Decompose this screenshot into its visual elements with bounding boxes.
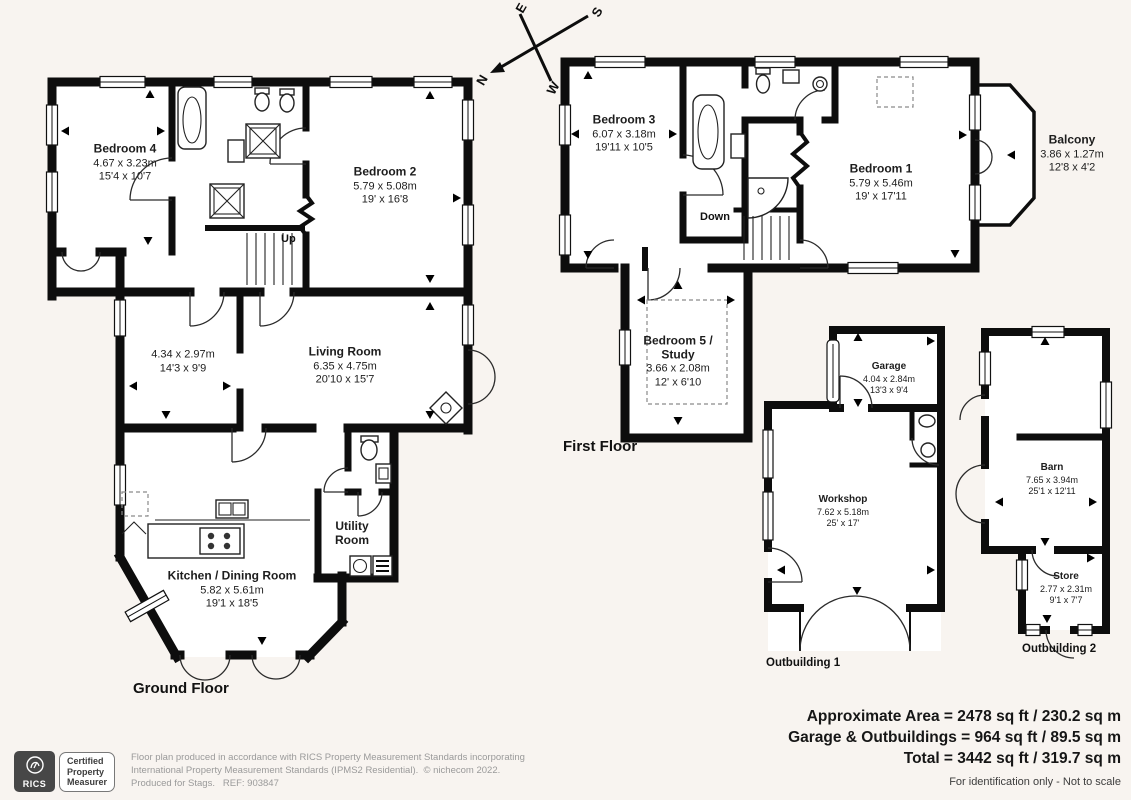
room-dim-imperial: 25' x 17' (817, 518, 869, 530)
room-dim-metric: 4.34 x 2.97m (151, 349, 215, 363)
room-name: Living Room (309, 345, 382, 359)
badge-line: Certified (67, 756, 107, 767)
room-label-balcony: Balcony 3.86 x 1.27m 12'8 x 4'2 (1040, 133, 1104, 175)
washer-icon (350, 556, 392, 576)
badge-line: Property (67, 767, 107, 778)
room-dim-metric: 4.04 x 2.84m (863, 373, 915, 385)
room-name: Bedroom 1 (849, 162, 913, 176)
room-label-utility-room: Utility Room (321, 520, 383, 548)
identification-note: For identification only - Not to scale (788, 772, 1121, 793)
room-label-living-room: Living Room 6.35 x 4.75m 20'10 x 15'7 (309, 345, 382, 387)
disclaimer-text: Floor plan produced in accordance with R… (131, 751, 525, 790)
total-area-line: Total = 3442 sq ft / 319.7 sq m (788, 748, 1121, 769)
room-dim-imperial: 15'4 x 10'7 (93, 170, 157, 184)
room-dim-metric: 6.35 x 4.75m (309, 360, 382, 374)
first-floor-title: First Floor (563, 438, 637, 455)
disclaimer-line: International Property Measurement Stand… (131, 764, 525, 777)
room-dim-metric: 4.67 x 3.23m (93, 157, 157, 171)
rics-logo: RICS (14, 751, 55, 792)
room-dim-metric: 2.77 x 2.31m (1040, 583, 1092, 595)
room-dim-imperial: 19' x 17'11 (849, 190, 913, 204)
stairs-down-label: Down (700, 211, 730, 223)
room-dim-metric: 7.65 x 3.94m (1026, 474, 1078, 486)
room-name: Garage (863, 360, 915, 374)
room-label-kitchen-dining: Kitchen / Dining Room 5.82 x 5.61m 19'1 … (168, 569, 297, 611)
room-name: Workshop (817, 493, 869, 507)
certified-property-measurer-badge: Certified Property Measurer (59, 752, 115, 792)
room-label-bedroom-3: Bedroom 3 6.07 x 3.18m 19'11 x 10'5 (592, 113, 656, 155)
room-name: Store (1040, 570, 1092, 584)
disclaimer-line: Floor plan produced in accordance with R… (131, 751, 525, 764)
room-dim-metric: 5.79 x 5.08m (353, 180, 417, 194)
room-dim-metric: 5.82 x 5.61m (168, 584, 297, 598)
sink-icon (731, 134, 745, 158)
room-name: Balcony (1040, 133, 1104, 147)
room-dim-metric: 5.79 x 5.46m (849, 177, 913, 191)
room-label-barn: Barn 7.65 x 3.94m 25'1 x 12'11 (1026, 461, 1078, 498)
kitchen-island-icon (148, 524, 244, 558)
room-dim-imperial: 19' x 16'8 (353, 193, 417, 207)
outbuilding-2-title: Outbuilding 2 (1022, 643, 1096, 655)
room-label-bedroom-1: Bedroom 1 5.79 x 5.46m 19' x 17'11 (849, 162, 913, 204)
room-label-store: Store 2.77 x 2.31m 9'1 x 7'7 (1040, 570, 1092, 607)
rics-logo-text: RICS (14, 779, 55, 789)
room-dim-metric: 6.07 x 3.18m (592, 128, 656, 142)
disclaimer-line: Produced for Stags. REF: 903847 (131, 777, 525, 790)
room-label-bedroom-2: Bedroom 2 5.79 x 5.08m 19' x 16'8 (353, 165, 417, 207)
room-dim-imperial: 20'10 x 15'7 (309, 373, 382, 387)
garage-outbuildings-line: Garage & Outbuildings = 964 sq ft / 89.5… (788, 727, 1121, 748)
bathtub-icon (693, 95, 724, 169)
outbuilding-1-title: Outbuilding 1 (766, 657, 840, 669)
approximate-area-line: Approximate Area = 2478 sq ft / 230.2 sq… (788, 706, 1121, 727)
room-dim-imperial: 12'8 x 4'2 (1040, 161, 1104, 175)
ground-floor-title: Ground Floor (133, 680, 229, 697)
room-label-garage: Garage 4.04 x 2.84m 13'3 x 9'4 (863, 360, 915, 397)
room-name: Utility Room (321, 520, 383, 547)
room-name: Bedroom 2 (353, 165, 417, 179)
sink-icon (228, 140, 244, 162)
room-label-workshop: Workshop 7.62 x 5.18m 25' x 17' (817, 493, 869, 530)
bathtub-icon (178, 87, 206, 149)
room-dim-metric: 7.62 x 5.18m (817, 506, 869, 518)
room-name: Barn (1026, 461, 1078, 475)
room-label-unnamed-room: 4.34 x 2.97m 14'3 x 9'9 (151, 349, 215, 376)
room-dim-imperial: 12' x 6'10 (634, 376, 722, 390)
room-label-bedroom-4: Bedroom 4 4.67 x 3.23m 15'4 x 10'7 (93, 142, 157, 184)
area-summary: Approximate Area = 2478 sq ft / 230.2 sq… (788, 706, 1121, 793)
room-dim-metric: 3.86 x 1.27m (1040, 148, 1104, 162)
floor-plan-page: N E S W Bedroom 4 4.67 x 3.23m 15'4 x 10… (0, 0, 1131, 800)
room-dim-imperial: 9'1 x 7'7 (1040, 595, 1092, 607)
room-name: Bedroom 4 (93, 142, 157, 156)
room-name: Bedroom 3 (592, 113, 656, 127)
room-label-bedroom-5-study: Bedroom 5 / Study 3.66 x 2.08m 12' x 6'1… (634, 335, 722, 390)
stairs-up-label: Up (281, 233, 296, 245)
rics-crest-icon (24, 754, 46, 776)
room-dim-metric: 3.66 x 2.08m (634, 363, 722, 377)
room-name: Kitchen / Dining Room (168, 569, 297, 583)
room-dim-imperial: 14'3 x 9'9 (151, 362, 215, 376)
room-dim-imperial: 25'1 x 12'11 (1026, 486, 1078, 498)
badge-line: Measurer (67, 777, 107, 788)
room-name: Bedroom 5 / Study (634, 335, 722, 362)
room-dim-imperial: 19'11 x 10'5 (592, 141, 656, 155)
room-dim-imperial: 19'1 x 18'5 (168, 597, 297, 611)
room-dim-imperial: 13'3 x 9'4 (863, 385, 915, 397)
